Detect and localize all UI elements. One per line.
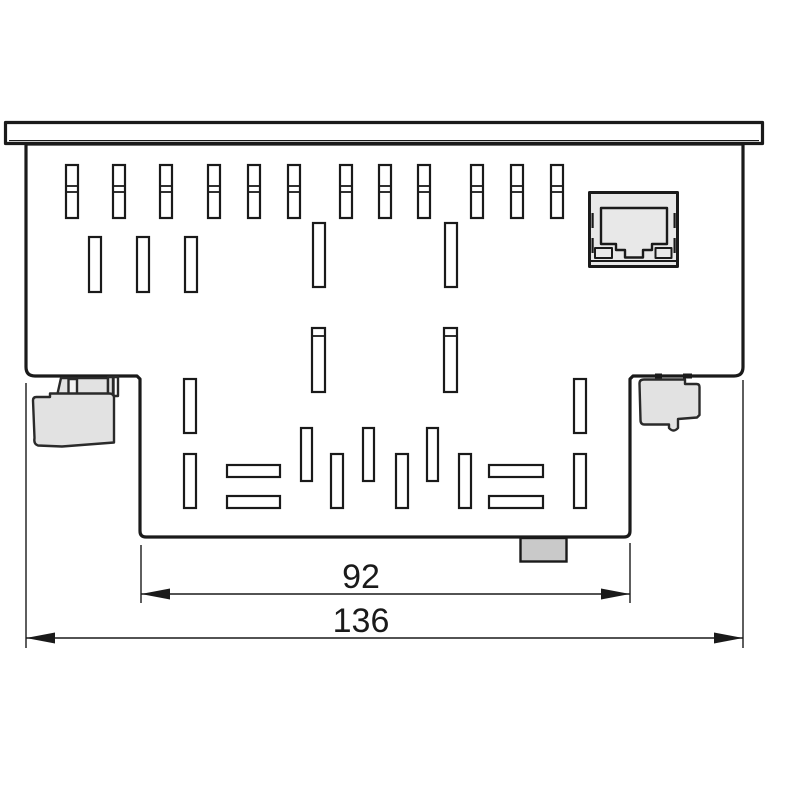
technical-drawing-canvas: 92 136 <box>0 0 800 800</box>
vent-bar <box>489 496 543 508</box>
arrowhead-left <box>26 633 55 644</box>
vent-slot <box>396 454 408 508</box>
vent-slot <box>89 237 101 292</box>
connector-left-rail <box>114 377 119 396</box>
rj45-pad-right <box>656 248 672 258</box>
vent-slot <box>312 328 325 392</box>
vent-slot <box>445 223 457 287</box>
vent-slot <box>313 223 325 287</box>
mounting-flange <box>6 123 763 144</box>
vent-slot <box>185 237 197 292</box>
vent-slot <box>301 428 312 481</box>
vent-slot <box>184 454 196 508</box>
bottom-tab <box>521 538 567 562</box>
vent-bar <box>227 496 280 508</box>
dimension-outer-value: 136 <box>333 602 390 640</box>
vent-slot <box>184 379 196 433</box>
connector-left <box>33 377 118 447</box>
vent-slot <box>137 237 149 292</box>
rj45-pad-left <box>595 248 612 258</box>
arrowhead-left <box>141 589 170 600</box>
arrowhead-right <box>601 589 630 600</box>
vent-bar <box>489 465 543 477</box>
vent-bar <box>227 465 280 477</box>
drawing-svg: 92 136 <box>0 0 800 800</box>
vent-slot <box>574 379 586 433</box>
connector-right-body <box>640 380 700 431</box>
connector-right-tab <box>683 374 692 379</box>
vent-slot <box>459 454 471 508</box>
vent-slot <box>363 428 374 481</box>
connector-right-tab <box>655 374 662 379</box>
arrowhead-right <box>714 633 743 644</box>
dimension-inner-value: 92 <box>342 558 380 596</box>
vent-slot <box>574 454 586 508</box>
connector-right <box>640 374 700 431</box>
vent-slot <box>331 454 343 508</box>
vent-slot <box>427 428 438 481</box>
rj45-ethernet-port <box>590 193 678 267</box>
vent-slot <box>444 328 457 392</box>
connector-left-body <box>33 394 114 447</box>
